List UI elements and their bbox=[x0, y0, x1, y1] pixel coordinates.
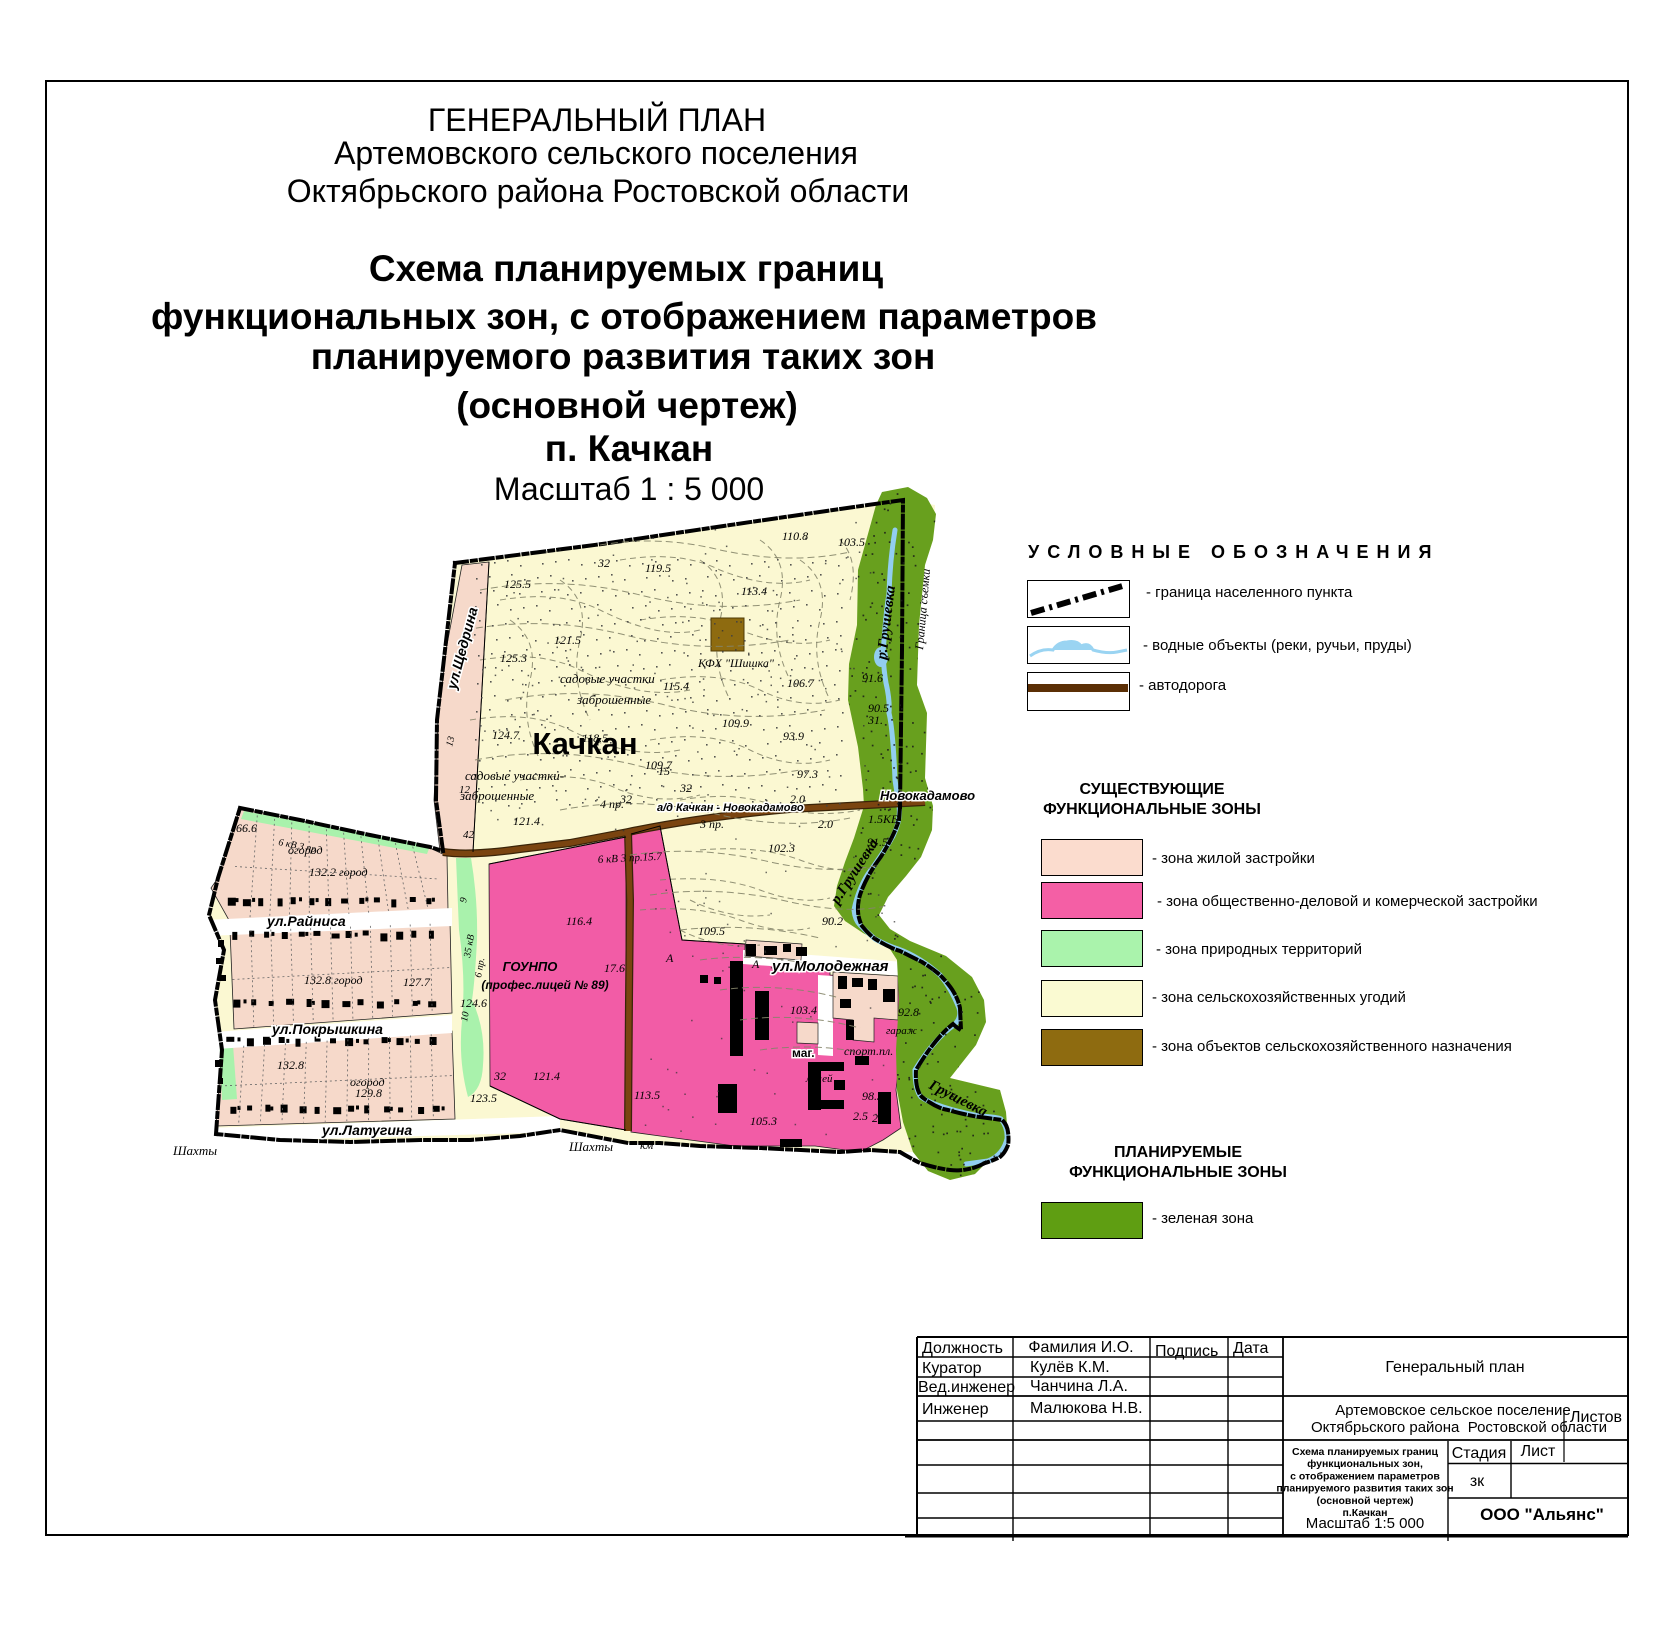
svg-text:Генеральный план: Генеральный план bbox=[1385, 1359, 1524, 1376]
svg-text:с отображением параметров: с отображением параметров bbox=[1290, 1470, 1440, 1482]
svg-text:Инженер: Инженер bbox=[922, 1401, 989, 1418]
svg-text:Куратор: Куратор bbox=[922, 1360, 982, 1377]
svg-text:функциональных зон,: функциональных зон, bbox=[1307, 1458, 1423, 1470]
svg-text:Стадия: Стадия bbox=[1452, 1445, 1507, 1462]
svg-text:Схема планируемых границ: Схема планируемых границ bbox=[1292, 1446, 1438, 1458]
svg-text:ООО "Альянс": ООО "Альянс" bbox=[1480, 1505, 1604, 1524]
svg-text:Артемовское сельское поселение: Артемовское сельское поселение bbox=[1335, 1402, 1571, 1419]
svg-text:Масштаб 1:5 000: Масштаб 1:5 000 bbox=[1306, 1515, 1424, 1532]
svg-text:планируемого развития таких зо: планируемого развития таких зон bbox=[1276, 1483, 1453, 1495]
svg-text:Фамилия И.О.: Фамилия И.О. bbox=[1028, 1339, 1133, 1356]
svg-text:Подпись: Подпись bbox=[1155, 1343, 1218, 1360]
svg-text:Вед.инженер: Вед.инженер bbox=[918, 1379, 1015, 1396]
svg-text:Октябрьского района Ростовско: Октябрьского района Ростовской области bbox=[1311, 1419, 1607, 1436]
svg-text:Малюкова Н.В.: Малюкова Н.В. bbox=[1030, 1400, 1143, 1417]
svg-text:Дата: Дата bbox=[1233, 1340, 1269, 1357]
svg-text:Лист: Лист bbox=[1521, 1443, 1556, 1460]
svg-text:Чанчина Л.А.: Чанчина Л.А. bbox=[1030, 1378, 1128, 1395]
svg-text:Кулёв К.М.: Кулёв К.М. bbox=[1030, 1359, 1110, 1376]
svg-text:Листов: Листов bbox=[1570, 1409, 1622, 1426]
svg-text:Должность: Должность bbox=[922, 1340, 1003, 1357]
svg-text:(основной чертеж): (основной чертеж) bbox=[1317, 1495, 1414, 1507]
svg-text:зк: зк bbox=[1470, 1473, 1485, 1490]
